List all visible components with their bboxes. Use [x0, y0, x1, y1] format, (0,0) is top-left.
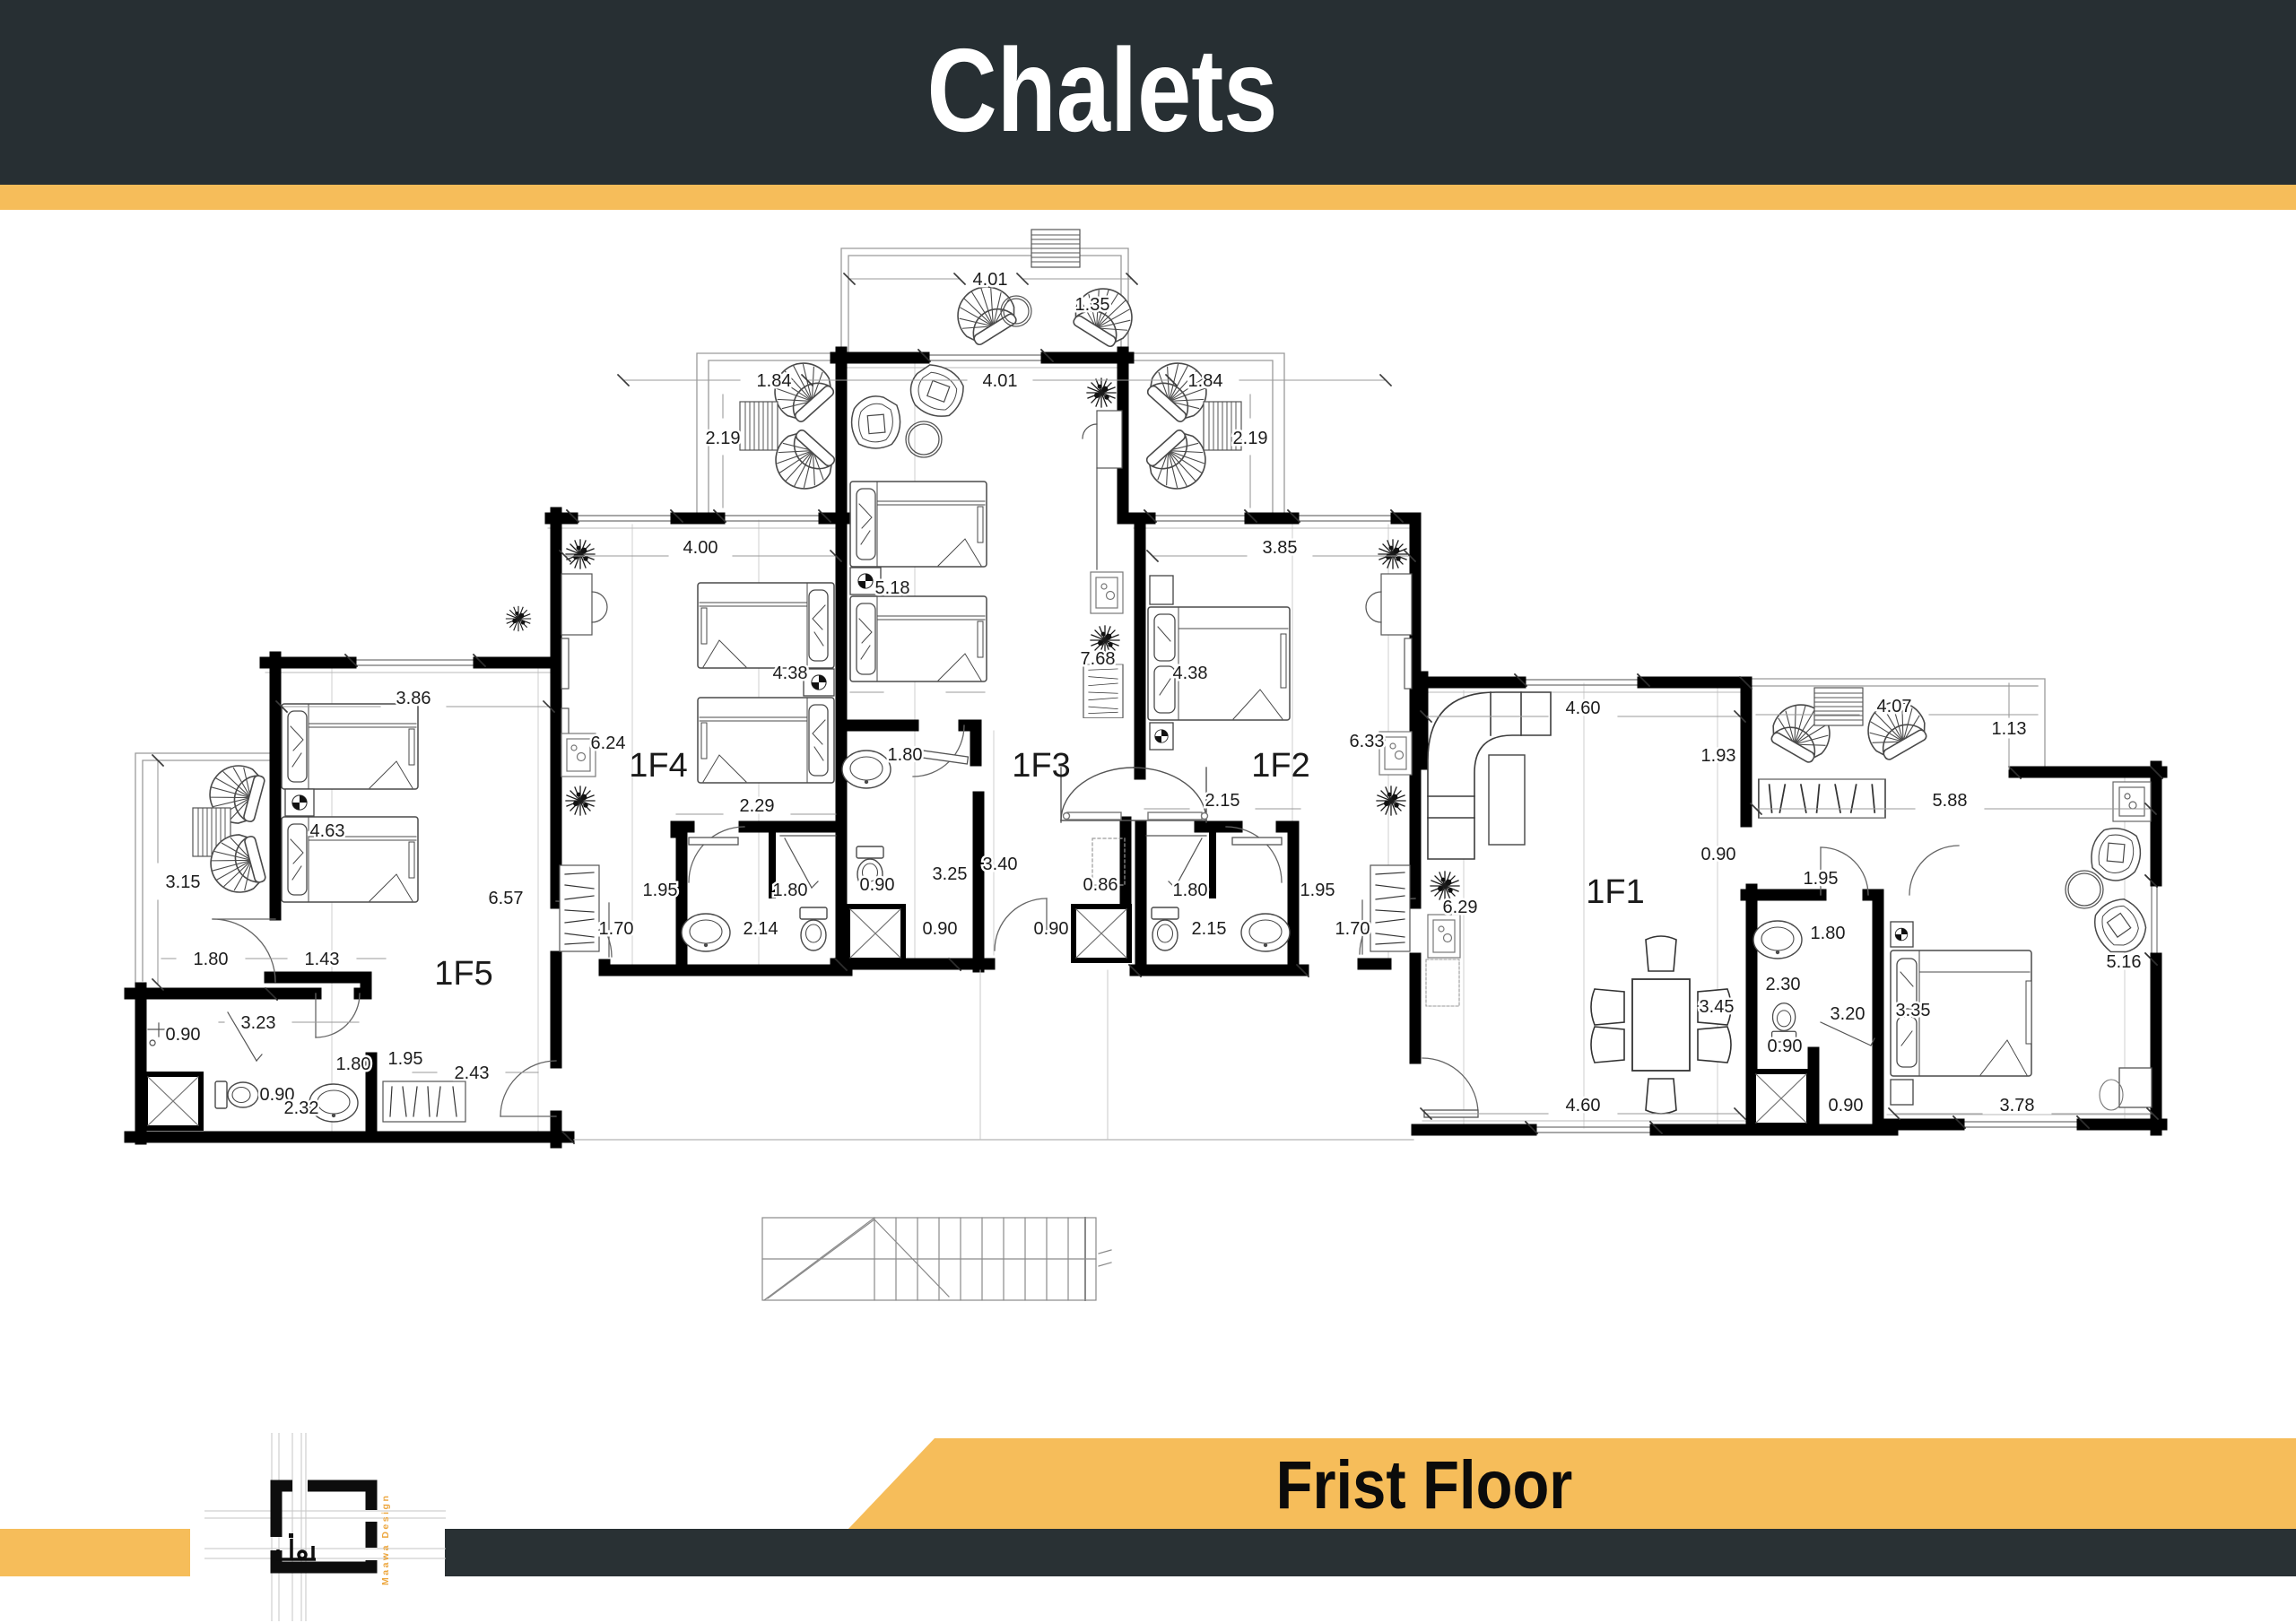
svg-text:4.38: 4.38 — [773, 664, 808, 683]
svg-text:1F2: 1F2 — [1251, 747, 1309, 785]
svg-text:0.90: 0.90 — [1701, 845, 1736, 864]
svg-text:2.19: 2.19 — [1233, 429, 1268, 448]
svg-text:1.80: 1.80 — [888, 745, 923, 765]
svg-text:1.13: 1.13 — [1992, 719, 2027, 739]
svg-text:1.70: 1.70 — [1335, 919, 1370, 939]
svg-text:1.35: 1.35 — [1075, 295, 1110, 315]
svg-text:1F1: 1F1 — [1586, 873, 1644, 911]
svg-text:3.45: 3.45 — [1700, 997, 1735, 1017]
svg-text:2.29: 2.29 — [740, 796, 775, 816]
svg-text:0.86: 0.86 — [1083, 875, 1118, 895]
svg-text:5.88: 5.88 — [1933, 791, 1968, 811]
svg-text:Maawa Design: Maawa Design — [380, 1494, 391, 1585]
svg-text:2.30: 2.30 — [1766, 975, 1801, 994]
svg-text:4.63: 4.63 — [310, 821, 345, 841]
svg-text:1.80: 1.80 — [773, 881, 808, 900]
svg-text:4.07: 4.07 — [1877, 697, 1912, 716]
svg-text:2.15: 2.15 — [1205, 791, 1240, 811]
svg-text:7.68: 7.68 — [1081, 649, 1116, 669]
svg-text:3.15: 3.15 — [166, 872, 201, 892]
svg-text:4.60: 4.60 — [1566, 699, 1601, 718]
svg-text:1.43: 1.43 — [305, 950, 340, 969]
svg-text:2.43: 2.43 — [455, 1063, 490, 1083]
svg-text:1F4: 1F4 — [629, 747, 687, 785]
svg-text:1.84: 1.84 — [757, 371, 792, 391]
svg-text:1.80: 1.80 — [336, 1055, 371, 1074]
svg-text:0.90: 0.90 — [166, 1025, 201, 1045]
svg-text:3.86: 3.86 — [396, 689, 431, 708]
svg-text:1F5: 1F5 — [434, 955, 492, 993]
svg-text:1.80: 1.80 — [194, 950, 229, 969]
svg-text:2.32: 2.32 — [284, 1098, 319, 1118]
svg-text:0.90: 0.90 — [1829, 1096, 1864, 1115]
svg-text:6.29: 6.29 — [1443, 898, 1478, 917]
svg-text:0.90: 0.90 — [860, 875, 895, 895]
svg-text:2.19: 2.19 — [706, 429, 741, 448]
svg-text:1.80: 1.80 — [1811, 924, 1846, 943]
svg-text:5.16: 5.16 — [2107, 952, 2142, 972]
svg-text:0.90: 0.90 — [1034, 919, 1069, 939]
svg-text:3.40: 3.40 — [983, 855, 1018, 874]
svg-text:6.24: 6.24 — [591, 733, 626, 753]
svg-text:3.78: 3.78 — [2000, 1096, 2035, 1115]
svg-text:Frist Floor: Frist Floor — [1276, 1447, 1573, 1523]
svg-text:6.57: 6.57 — [489, 889, 524, 908]
svg-text:3.35: 3.35 — [1896, 1001, 1931, 1020]
svg-text:1.93: 1.93 — [1701, 746, 1736, 766]
svg-text:0.90: 0.90 — [923, 919, 958, 939]
svg-text:1.70: 1.70 — [599, 919, 634, 939]
svg-text:2.14: 2.14 — [744, 919, 778, 939]
svg-text:2.15: 2.15 — [1192, 919, 1227, 939]
svg-text:1F3: 1F3 — [1012, 747, 1070, 785]
svg-text:3.85: 3.85 — [1263, 538, 1298, 558]
svg-text:4.01: 4.01 — [973, 270, 1008, 290]
svg-text:1.95: 1.95 — [643, 881, 678, 900]
svg-text:5.18: 5.18 — [875, 578, 910, 598]
svg-text:3.23: 3.23 — [241, 1013, 276, 1033]
svg-text:1.84: 1.84 — [1188, 371, 1223, 391]
svg-text:6.33: 6.33 — [1350, 732, 1385, 751]
svg-text:1.80: 1.80 — [1173, 881, 1208, 900]
svg-text:4.60: 4.60 — [1566, 1096, 1601, 1115]
svg-text:4.01: 4.01 — [983, 371, 1018, 391]
svg-text:4.00: 4.00 — [683, 538, 718, 558]
svg-text:Chalets: Chalets — [927, 24, 1278, 157]
svg-text:1.95: 1.95 — [1300, 881, 1335, 900]
svg-text:3.20: 3.20 — [1831, 1004, 1865, 1024]
svg-text:3.25: 3.25 — [933, 864, 968, 884]
svg-text:1.95: 1.95 — [388, 1049, 423, 1069]
svg-text:4.38: 4.38 — [1173, 664, 1208, 683]
svg-text:1.95: 1.95 — [1804, 869, 1839, 889]
svg-text:0.90: 0.90 — [1768, 1037, 1803, 1056]
